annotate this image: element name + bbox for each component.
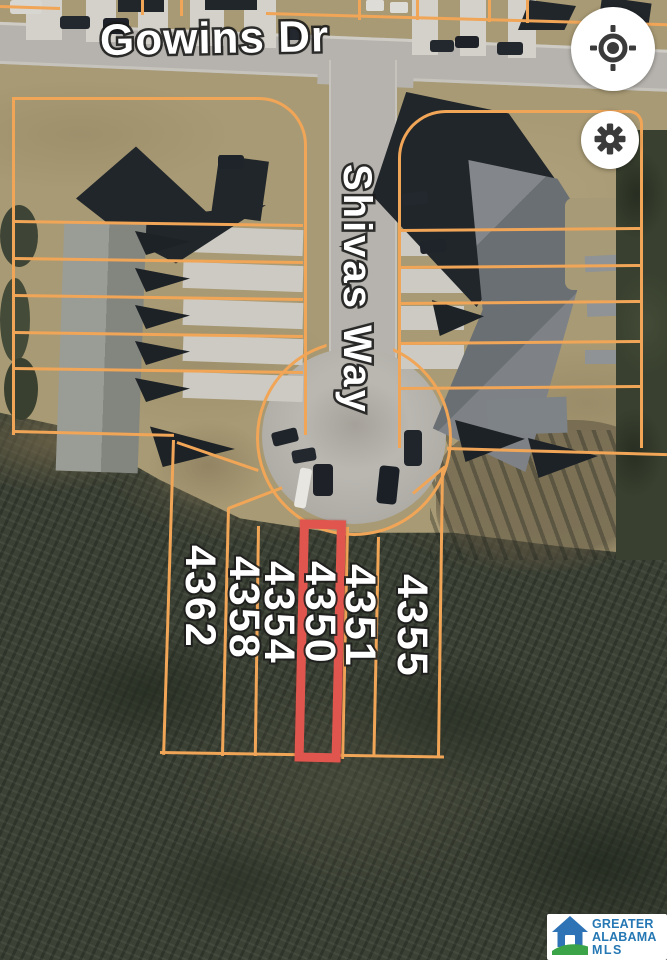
parcel-line [488,0,491,22]
car [60,16,90,29]
map-canvas[interactable]: Gowins Dr Shivas Way 4362 4358 4354 4350… [0,0,667,960]
car [390,2,408,13]
car [430,40,454,52]
crosshair-icon [590,25,636,74]
street-label-shivas-way: Shivas Way [334,164,379,415]
parcel-line [358,0,361,20]
lot-label-4355: 4355 [387,574,436,678]
lot-label-4362: 4362 [175,545,224,649]
car [497,42,523,55]
lot-label-4351: 4351 [335,564,384,668]
street-label-gowins-dr: Gowins Dr [100,12,330,66]
logo-line-greater: GREATER [592,918,657,931]
logo-house-icon [550,914,590,960]
gear-icon [593,122,627,159]
logo-line-alabama: ALABAMA [592,931,657,944]
logo-text: GREATER ALABAMA MLS [592,918,657,957]
locate-button[interactable] [571,7,655,91]
mls-logo: GREATER ALABAMA MLS [547,914,667,960]
logo-line-mls: MLS [592,944,657,957]
car [455,36,479,48]
house-roof [205,0,257,10]
parcel-boundary [12,97,307,435]
parcel-line [141,0,144,15]
parcel-line [416,0,419,20]
car [366,0,384,11]
settings-button[interactable] [581,111,639,169]
parcel-line [526,0,529,23]
